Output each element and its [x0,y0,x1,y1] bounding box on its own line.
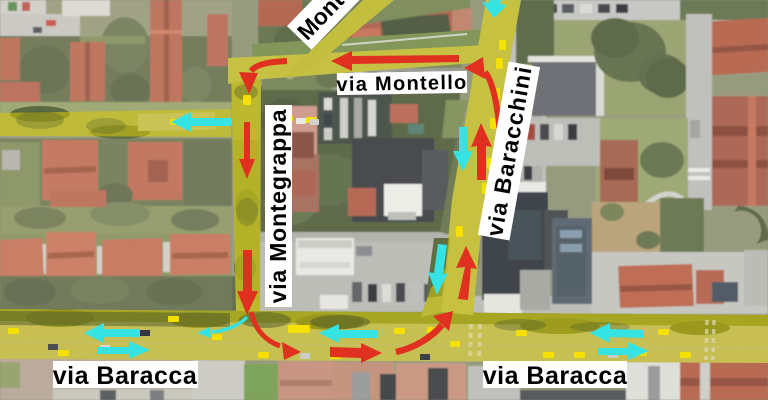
svg-text:via Baracca: via Baracca [483,362,628,390]
svg-text:via Baracca: via Baracca [53,362,198,390]
svg-text:via Montegrappa: via Montegrappa [265,109,291,304]
svg-text:via Montello: via Montello [336,72,468,96]
